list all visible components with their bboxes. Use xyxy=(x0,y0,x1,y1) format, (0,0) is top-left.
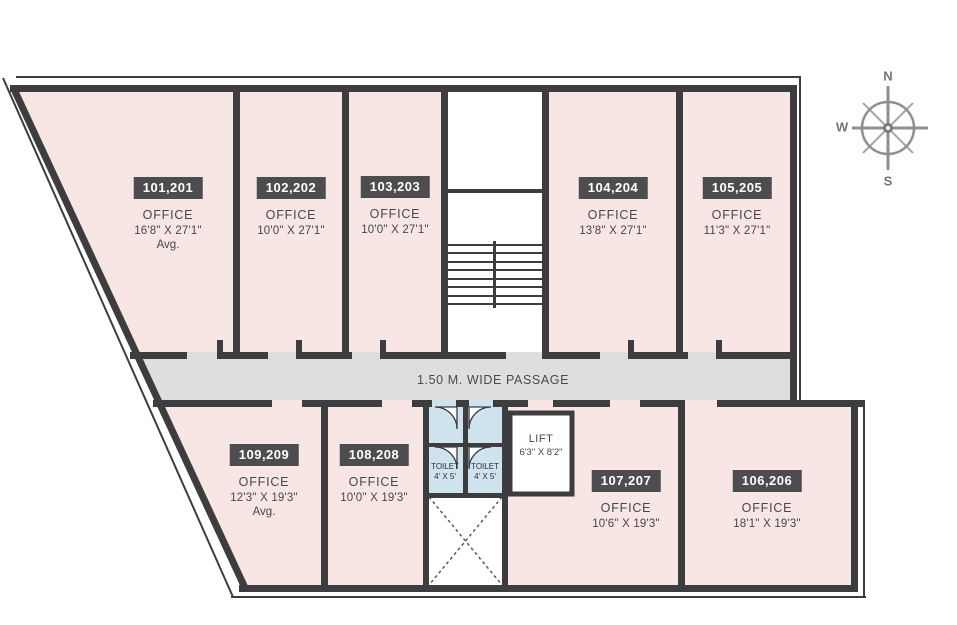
toilet-label-left: TOILET 4' X 5' xyxy=(431,462,459,482)
room-label-102-202: 102,202 OFFICE 10'0" X 27'1" xyxy=(257,177,326,237)
room-type: OFFICE xyxy=(361,207,430,221)
unit-number-badge: 101,201 xyxy=(134,177,203,199)
room-dims: 10'0" X 27'1" xyxy=(257,225,326,237)
outer-line-bottom xyxy=(231,596,866,598)
room-label-103-203: 103,203 OFFICE 10'0" X 27'1" xyxy=(361,176,430,236)
room-type: OFFICE xyxy=(340,475,409,489)
toilet-dims: 4' X 5' xyxy=(431,472,459,482)
compass-north-label: N xyxy=(883,69,892,84)
staircase-fill xyxy=(448,92,542,352)
room-type: OFFICE xyxy=(703,208,772,222)
floor-plan-drawing xyxy=(0,0,957,625)
room-type: OFFICE xyxy=(257,208,326,222)
room-note: Avg. xyxy=(134,239,203,251)
toilet-label-right: TOILET 4' X 5' xyxy=(471,462,499,482)
lift-label: LIFT 6'3" X 8'2" xyxy=(519,433,562,458)
outer-line-top xyxy=(16,76,800,78)
room-type: OFFICE xyxy=(134,208,203,222)
room-dims: 10'0" X 27'1" xyxy=(361,224,430,236)
outer-line-right-bottom xyxy=(863,400,865,598)
unit-number-badge: 102,202 xyxy=(257,177,326,199)
room-label-107-207: 107,207 OFFICE 10'6" X 19'3" xyxy=(592,470,661,530)
outer-line-right-top xyxy=(799,76,801,402)
unit-number-badge: 107,207 xyxy=(592,470,661,492)
room-type: OFFICE xyxy=(733,501,802,515)
unit-number-badge: 103,203 xyxy=(361,176,430,198)
room-type: OFFICE xyxy=(579,208,648,222)
compass-south-label: S xyxy=(884,174,893,189)
unit-number-badge: 106,206 xyxy=(733,470,802,492)
unit-number-badge: 109,209 xyxy=(230,444,299,466)
room-type: OFFICE xyxy=(230,475,299,489)
room-label-101-201: 101,201 OFFICE 16'8" X 27'1" Avg. xyxy=(134,177,203,251)
floor-plan: 101,201 OFFICE 16'8" X 27'1" Avg. 102,20… xyxy=(0,0,957,625)
lift-name: LIFT xyxy=(519,433,562,445)
toilet-dims: 4' X 5' xyxy=(471,472,499,482)
room-label-109-209: 109,209 OFFICE 12'3" X 19'3" Avg. xyxy=(230,444,299,518)
compass-icon xyxy=(852,86,928,170)
compass-west-label: W xyxy=(836,120,848,135)
toilet-name: TOILET xyxy=(471,462,499,472)
room-dims: 10'6" X 19'3" xyxy=(592,518,661,530)
room-type: OFFICE xyxy=(592,501,661,515)
room-dims: 10'0" X 19'3" xyxy=(340,492,409,504)
room-dims: 13'8" X 27'1" xyxy=(579,225,648,237)
room-label-104-204: 104,204 OFFICE 13'8" X 27'1" xyxy=(579,177,648,237)
lift-dims: 6'3" X 8'2" xyxy=(519,447,562,458)
room-dims: 12'3" X 19'3" xyxy=(230,492,299,504)
passage-label: 1.50 M. WIDE PASSAGE xyxy=(417,373,569,387)
unit-number-badge: 105,205 xyxy=(703,177,772,199)
room-note: Avg. xyxy=(230,506,299,518)
room-label-106-206: 106,206 OFFICE 18'1" X 19'3" xyxy=(733,470,802,530)
room-dims: 16'8" X 27'1" xyxy=(134,225,203,237)
unit-number-badge: 104,204 xyxy=(579,177,648,199)
room-fills xyxy=(13,86,858,591)
room-label-105-205: 105,205 OFFICE 11'3" X 27'1" xyxy=(703,177,772,237)
toilet-name: TOILET xyxy=(431,462,459,472)
room-label-108-208: 108,208 OFFICE 10'0" X 19'3" xyxy=(340,444,409,504)
room-dims: 11'3" X 27'1" xyxy=(703,225,772,237)
unit-number-badge: 108,208 xyxy=(340,444,409,466)
room-dims: 18'1" X 19'3" xyxy=(733,518,802,530)
